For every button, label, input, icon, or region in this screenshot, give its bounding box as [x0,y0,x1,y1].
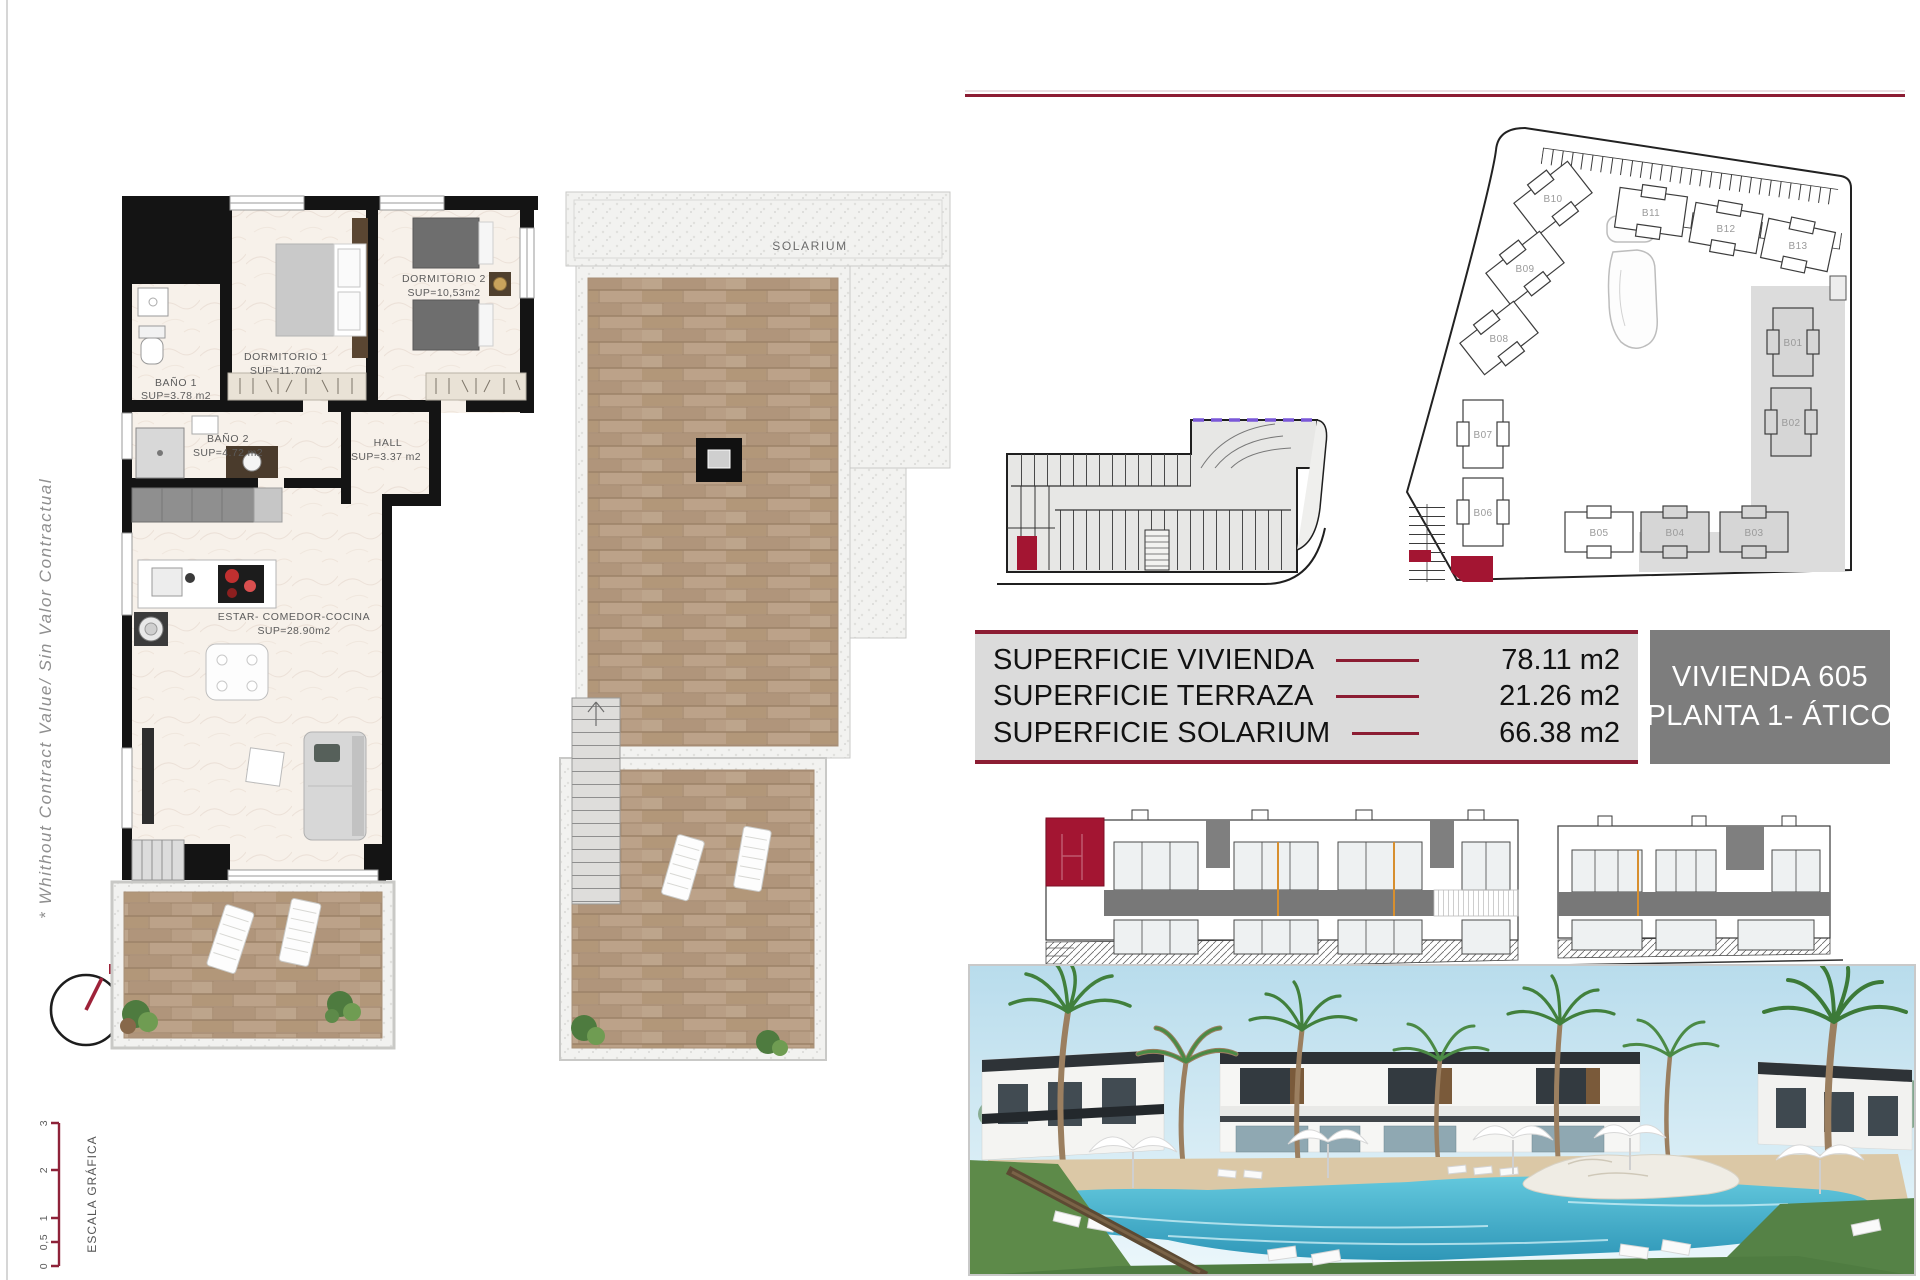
wardrobe-bedroom1 [228,373,366,400]
surface-label: SUPERFICIE SOLARIUM [993,717,1330,750]
site-building-b07: B07 [1457,400,1509,468]
townhouses-left [982,1050,1164,1160]
svg-text:B07: B07 [1474,430,1493,441]
townhouses-right [1758,1062,1912,1150]
svg-text:B02: B02 [1782,418,1801,429]
highlighted-parking-stall [1017,536,1037,570]
svg-text:B12: B12 [1717,224,1736,235]
surface-summary-table: SUPERFICIE VIVIENDA 78.11 m2 SUPERFICIE … [975,630,1890,764]
unit-name: VIVIENDA 605 [1672,661,1868,694]
svg-text:B01: B01 [1784,338,1803,349]
utility-box [1830,276,1846,300]
highlighted-elevation-unit [1046,818,1104,886]
interior-stairs [132,840,184,880]
room-label-hall: HALL [374,437,403,449]
unit-floor: PLANTA 1- ÁTICO [1646,700,1893,733]
svg-text:B10: B10 [1544,194,1563,205]
highlighted-parking [1409,550,1431,562]
scale-tick-2: 2 [38,1167,50,1173]
surface-value: 21.26 m2 [1435,680,1620,713]
scale-tick-1: 1 [38,1215,50,1221]
site-building-b03: B03 [1720,506,1788,558]
scale-bar-title: ESCALA GRÁFICA [84,1135,99,1252]
site-building-b02: B02 [1765,388,1817,456]
room-area-bano2: SUP=4.72 m2 [193,447,263,459]
washing-machine [134,612,168,646]
leader-line [1336,659,1419,662]
lower-windows [1572,920,1814,950]
garage-stairs [1145,530,1169,570]
solarium-plan: SOLARIUM [558,186,956,1082]
terrace [112,882,394,1048]
scale-tick-0: 0 [38,1263,50,1269]
room-area-estar: SUP=28.90m2 [258,625,331,637]
solarium-stairs [572,698,620,904]
balcony-band [1558,892,1830,916]
surface-value: 66.38 m2 [1435,717,1620,750]
solarium-upper-deck [576,266,850,758]
upper-windows [1572,850,1820,892]
dining-table [206,644,268,700]
kitchen-counter [132,488,282,522]
header-divider-line [965,94,1905,97]
room-label-estar: ESTAR- COMEDOR-COCINA [218,611,370,623]
room-area-bano1: SUP=3.78 m2 [141,390,211,402]
site-building-b04: B04 [1641,506,1709,558]
svg-text:B11: B11 [1642,208,1660,219]
surface-label: SUPERFICIE TERRAZA [993,680,1314,713]
solarium-label: SOLARIUM [772,239,847,253]
svg-text:B08: B08 [1490,334,1509,345]
svg-text:B04: B04 [1666,528,1685,539]
scale-tick-3: 3 [38,1120,50,1126]
surface-label: SUPERFICIE VIVIENDA [993,644,1314,677]
room-label-dormitorio1: DORMITORIO 1 [244,351,328,363]
leader-line [1352,732,1419,735]
svg-text:B09: B09 [1516,264,1535,275]
site-building-b06: B06 [1457,478,1509,546]
tv-sideboard [142,728,154,824]
svg-text:B05: B05 [1590,528,1609,539]
table-row: SUPERFICIE VIVIENDA 78.11 m2 [993,644,1620,677]
site-building-b05: B05 [1565,506,1633,558]
svg-text:B13: B13 [1789,241,1808,252]
site-plan: B10 B09 B08 B11 B12 B13 B07 B06 [1393,120,1871,610]
elevation-right-building [1558,816,1830,958]
room-area-dormitorio2: SUP=10,53m2 [408,287,481,299]
garage-plan [995,410,1335,595]
townhouses-center [1220,1052,1640,1152]
bathroom1-fixtures [138,288,168,364]
unit-title-box: VIVIENDA 605 PLANTA 1- ÁTICO [1650,630,1890,764]
page-edge-line [6,0,8,1280]
sofa [304,732,366,840]
room-label-bano1: BAÑO 1 [155,376,197,389]
parking-stalls-top [1011,454,1191,486]
compass-needle [86,978,102,1010]
scale-bar-line [51,1123,59,1266]
room-area-dormitorio1: SUP=11.70m2 [250,365,322,377]
scale-tick-05: 0,5 [38,1234,50,1250]
contract-disclaimer: * Whithout Contract Value/ Sin Valor Con… [32,392,60,1004]
site-building-b01: B01 [1767,308,1819,376]
surface-rows: SUPERFICIE VIVIENDA 78.11 m2 SUPERFICIE … [975,630,1638,764]
elevation-left-building [1046,810,1518,972]
apartment-floor-plan: DORMITORIO 1 SUP=11.70m2 DORMITORIO 2 SU… [108,188,548,1078]
building-elevations [1038,790,1843,980]
pool-render-photo [968,964,1916,1276]
header-divider-shadow [965,90,1905,92]
plan-sheet: * Whithout Contract Value/ Sin Valor Con… [0,0,1920,1280]
balcony-band [1104,890,1434,916]
coffee-table [246,748,284,786]
svg-text:B06: B06 [1474,508,1493,519]
table-row: SUPERFICIE SOLARIUM 66.38 m2 [993,717,1620,750]
kitchen-island [138,560,276,608]
parking-stalls-bottom [1055,510,1291,570]
surface-value: 78.11 m2 [1435,644,1620,677]
room-label-dormitorio2: DORMITORIO 2 [402,273,486,285]
leader-line [1336,695,1419,698]
room-label-bano2: BAÑO 2 [207,432,249,445]
graphic-scale-bar: 0 0,5 1 2 3 ESCALA GRÁFICA [18,1106,138,1280]
room-area-hall: SUP=3.37 m2 [351,451,421,463]
parking-column-left [1409,504,1445,582]
table-row: SUPERFICIE TERRAZA 21.26 m2 [993,680,1620,713]
svg-text:B03: B03 [1745,528,1764,539]
